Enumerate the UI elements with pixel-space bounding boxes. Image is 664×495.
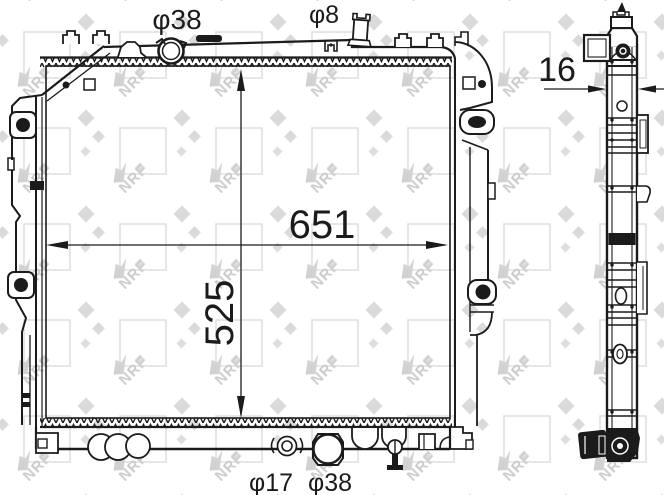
- dim-height-label: 525: [198, 280, 242, 347]
- side-top-bracket: [584, 35, 610, 61]
- radiator-technical-drawing: NRF: [0, 0, 664, 495]
- filler-diameter-label: φ38: [152, 4, 201, 35]
- filler-cap: [156, 39, 186, 64]
- drawing-svg: NRF: [0, 0, 664, 495]
- outlet-port-phi38: [313, 434, 343, 465]
- outlet-diameter-label: φ38: [308, 469, 352, 495]
- side-bottom-outlet: [578, 428, 640, 462]
- dim-width-label: 651: [289, 203, 356, 247]
- drain-diameter-label: φ17: [249, 469, 293, 495]
- dim-depth-label: 16: [538, 51, 576, 89]
- overflow-diameter-label: φ8: [309, 1, 339, 29]
- tank-bar: [196, 35, 222, 42]
